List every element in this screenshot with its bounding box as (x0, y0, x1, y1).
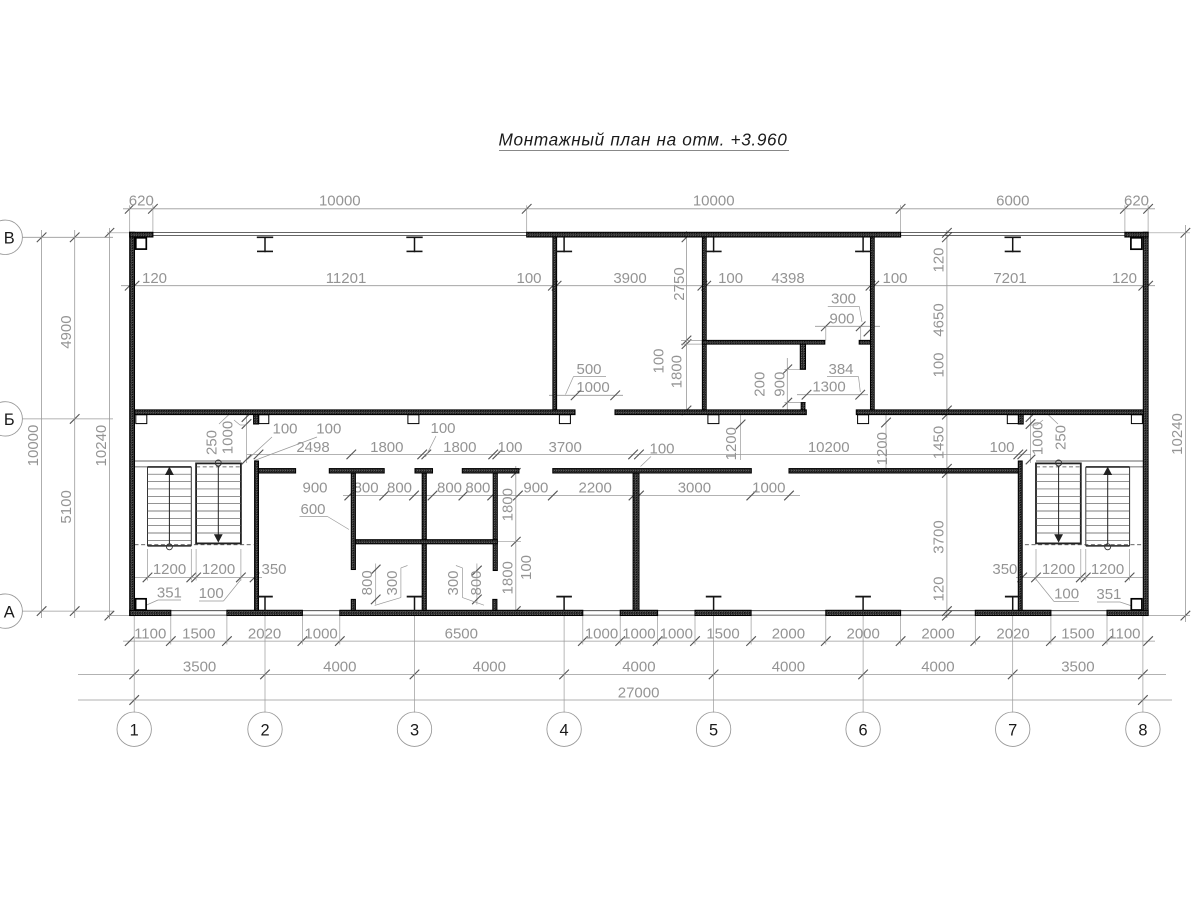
svg-text:4000: 4000 (323, 659, 356, 676)
svg-text:7: 7 (1008, 721, 1017, 739)
svg-text:10000: 10000 (319, 193, 361, 210)
svg-text:3700: 3700 (549, 439, 582, 456)
svg-text:900: 900 (302, 480, 327, 497)
svg-text:3: 3 (410, 721, 419, 739)
svg-text:1800: 1800 (500, 561, 517, 594)
svg-text:10240: 10240 (93, 425, 110, 467)
svg-text:7201: 7201 (993, 270, 1026, 287)
svg-text:351: 351 (157, 585, 182, 602)
svg-text:4000: 4000 (921, 659, 954, 676)
svg-text:1000: 1000 (752, 480, 785, 497)
svg-text:1800: 1800 (668, 355, 685, 388)
svg-text:100: 100 (649, 441, 674, 458)
svg-text:351: 351 (1096, 586, 1121, 603)
svg-text:А: А (4, 603, 15, 621)
svg-text:1000: 1000 (660, 625, 693, 642)
svg-text:100: 100 (316, 421, 341, 438)
svg-text:4900: 4900 (58, 315, 75, 348)
svg-text:27000: 27000 (618, 684, 660, 701)
svg-text:1200: 1200 (153, 561, 186, 578)
svg-text:2000: 2000 (772, 625, 805, 642)
svg-text:250: 250 (204, 430, 221, 455)
svg-text:100: 100 (882, 270, 907, 287)
svg-text:100: 100 (989, 439, 1014, 456)
svg-text:1000: 1000 (622, 625, 655, 642)
svg-text:800: 800 (354, 480, 379, 497)
svg-text:100: 100 (430, 420, 455, 437)
svg-text:4000: 4000 (772, 659, 805, 676)
svg-text:4: 4 (560, 721, 569, 739)
svg-text:3700: 3700 (930, 520, 947, 553)
svg-text:620: 620 (1124, 193, 1149, 210)
svg-text:900: 900 (772, 372, 789, 397)
svg-text:120: 120 (1112, 270, 1137, 287)
svg-text:100: 100 (1054, 586, 1079, 603)
svg-text:1500: 1500 (706, 625, 739, 642)
svg-text:900: 900 (829, 310, 854, 327)
svg-text:200: 200 (751, 372, 768, 397)
svg-text:10000: 10000 (25, 425, 42, 467)
svg-text:100: 100 (518, 555, 535, 580)
svg-text:3500: 3500 (183, 659, 216, 676)
svg-text:300: 300 (445, 570, 462, 595)
svg-text:1450: 1450 (930, 426, 947, 459)
svg-text:2: 2 (260, 721, 269, 739)
svg-text:4398: 4398 (771, 270, 804, 287)
svg-text:6500: 6500 (445, 625, 478, 642)
svg-text:100: 100 (930, 352, 947, 377)
svg-text:500: 500 (576, 361, 601, 378)
svg-text:800: 800 (437, 480, 462, 497)
svg-text:2020: 2020 (996, 625, 1029, 642)
svg-text:300: 300 (384, 570, 401, 595)
svg-text:5100: 5100 (58, 490, 75, 523)
svg-text:2750: 2750 (671, 267, 688, 300)
svg-text:1800: 1800 (370, 439, 403, 456)
svg-text:2498: 2498 (296, 439, 329, 456)
svg-text:1000: 1000 (304, 625, 337, 642)
svg-text:1100: 1100 (134, 625, 166, 642)
svg-text:384: 384 (828, 361, 853, 378)
svg-text:1000: 1000 (1030, 422, 1047, 455)
svg-text:800: 800 (359, 570, 376, 595)
svg-text:120: 120 (142, 270, 167, 287)
svg-text:800: 800 (387, 480, 412, 497)
svg-text:6000: 6000 (996, 193, 1029, 210)
svg-text:1200: 1200 (202, 561, 235, 578)
svg-text:100: 100 (199, 585, 224, 602)
svg-text:100: 100 (272, 421, 297, 438)
svg-text:620: 620 (129, 193, 154, 210)
svg-text:800: 800 (465, 480, 490, 497)
svg-text:600: 600 (300, 501, 325, 518)
svg-text:8: 8 (1138, 721, 1147, 739)
svg-text:11201: 11201 (326, 270, 367, 287)
svg-text:10200: 10200 (808, 439, 850, 456)
svg-text:100: 100 (718, 270, 743, 287)
svg-text:250: 250 (1052, 425, 1069, 450)
svg-text:350: 350 (261, 561, 286, 578)
svg-text:3000: 3000 (678, 480, 711, 497)
svg-text:4000: 4000 (622, 659, 655, 676)
svg-text:1000: 1000 (576, 379, 609, 396)
svg-text:120: 120 (930, 576, 947, 601)
svg-text:1100: 1100 (1108, 625, 1140, 642)
svg-text:1000: 1000 (585, 625, 618, 642)
svg-text:6: 6 (859, 721, 868, 739)
svg-text:350: 350 (992, 561, 1017, 578)
svg-text:1200: 1200 (874, 432, 891, 465)
svg-text:3900: 3900 (613, 270, 646, 287)
svg-text:10000: 10000 (693, 193, 735, 210)
svg-text:120: 120 (930, 247, 947, 272)
svg-text:100: 100 (497, 439, 522, 456)
svg-text:2200: 2200 (579, 480, 612, 497)
svg-text:1500: 1500 (1061, 625, 1094, 642)
svg-text:Б: Б (4, 411, 15, 429)
svg-text:1200: 1200 (723, 427, 740, 460)
svg-text:Монтажный план на отм. +3.960: Монтажный план на отм. +3.960 (499, 130, 788, 150)
svg-text:1300: 1300 (812, 378, 845, 395)
svg-text:3500: 3500 (1061, 659, 1094, 676)
svg-text:1500: 1500 (182, 625, 215, 642)
svg-text:4000: 4000 (473, 659, 506, 676)
svg-text:1200: 1200 (1091, 561, 1124, 578)
svg-text:1: 1 (130, 721, 139, 739)
svg-text:1000: 1000 (220, 421, 237, 454)
svg-text:100: 100 (516, 270, 541, 287)
svg-text:2020: 2020 (248, 625, 281, 642)
svg-text:5: 5 (709, 721, 718, 739)
svg-text:1800: 1800 (443, 439, 476, 456)
svg-text:10240: 10240 (1169, 413, 1186, 455)
svg-text:4650: 4650 (930, 303, 947, 336)
svg-text:900: 900 (523, 480, 548, 497)
svg-text:1800: 1800 (500, 488, 517, 521)
svg-text:2000: 2000 (921, 625, 954, 642)
svg-text:1200: 1200 (1042, 561, 1075, 578)
svg-text:В: В (4, 230, 15, 248)
svg-text:100: 100 (651, 348, 668, 373)
svg-text:300: 300 (831, 291, 856, 308)
svg-text:800: 800 (468, 570, 485, 595)
